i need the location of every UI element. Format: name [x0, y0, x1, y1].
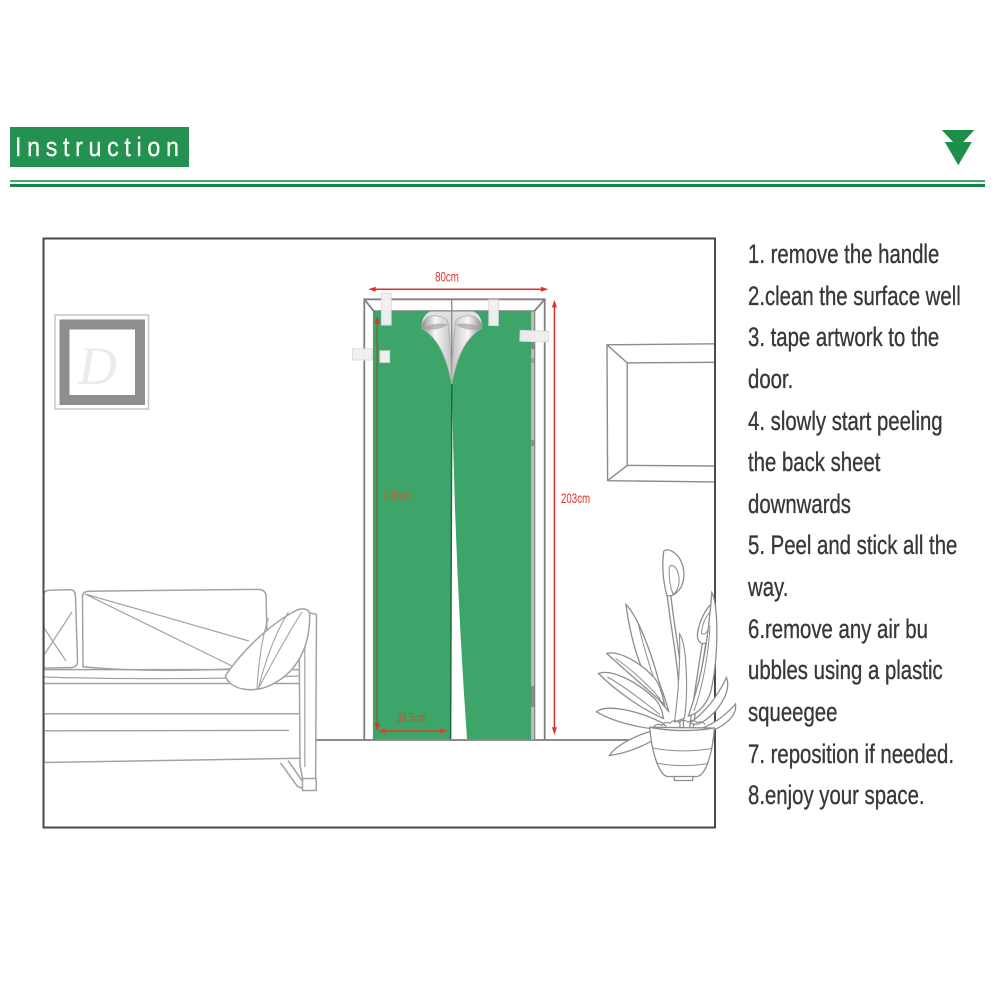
svg-text:D: D — [77, 336, 117, 396]
svg-text:200cm: 200cm — [383, 489, 411, 503]
svg-text:80cm: 80cm — [435, 270, 459, 285]
svg-text:203cm: 203cm — [561, 492, 590, 507]
svg-text:39.5cm: 39.5cm — [396, 712, 427, 726]
